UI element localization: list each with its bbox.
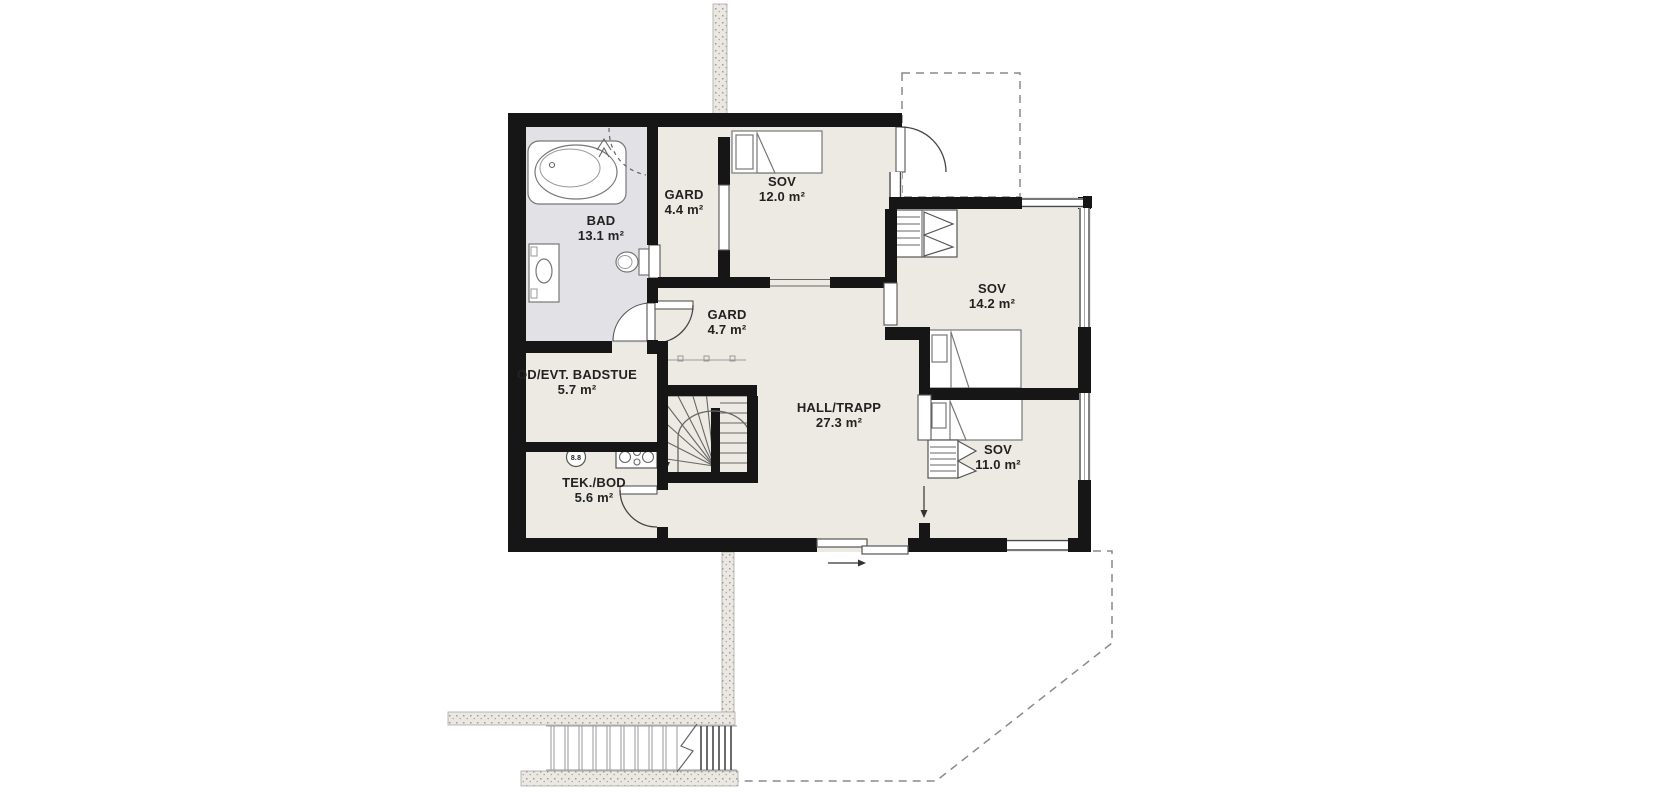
window-porch xyxy=(889,172,902,197)
door-gard-44 xyxy=(719,185,729,250)
bathtub xyxy=(528,141,626,204)
vent-shaft xyxy=(713,4,727,114)
bed-sov-110 xyxy=(928,399,1022,440)
room-area-sov-120: 12.0 m² xyxy=(759,189,806,204)
room-area-gard-44: 4.4 m² xyxy=(665,202,704,217)
room-area-bod-badstue: 5.7 m² xyxy=(558,382,597,397)
room-area-hall-trapp: 27.3 m² xyxy=(816,415,863,430)
open-door-sov-110 xyxy=(918,395,931,440)
terrace-outline xyxy=(738,551,1112,781)
outdoor-stairs xyxy=(546,724,737,772)
stair-break-line xyxy=(677,724,697,772)
floor-plan-page: 8.8 xyxy=(0,0,1670,800)
room-label-sov-110: SOV xyxy=(984,442,1012,457)
room-area-gard-47: 4.7 m² xyxy=(708,322,747,337)
floor-plan-drawing: 8.8 xyxy=(0,0,1670,800)
room-label-sov-120: SOV xyxy=(768,174,796,189)
room-area-sov-142: 14.2 m² xyxy=(969,296,1016,311)
window-right-lower xyxy=(1079,393,1090,480)
room-label-bod-badstue: OD/EVT. BADSTUE xyxy=(517,367,637,382)
porch-outline xyxy=(902,73,1020,197)
sink-vanity xyxy=(529,244,559,302)
wall-niche xyxy=(649,245,660,278)
room-area-bad: 13.1 m² xyxy=(578,228,625,243)
room-label-bad: BAD xyxy=(587,213,616,228)
window-bottom xyxy=(1007,539,1068,551)
entry-door xyxy=(896,127,946,172)
bed-sov-120 xyxy=(732,131,822,173)
room-area-sov-110: 11.0 m² xyxy=(975,457,1021,472)
room-label-hall-trapp: HALL/TRAPP xyxy=(797,400,881,415)
room-label-tek-bod: TEK./BOD xyxy=(562,475,626,490)
open-door-sov-142 xyxy=(884,283,897,325)
room-label-sov-142: SOV xyxy=(978,281,1006,296)
wardrobe-sov-142 xyxy=(893,210,957,257)
room-label-gard-44: GARD xyxy=(664,187,703,202)
bed-sov-142 xyxy=(928,330,1021,388)
room-area-tek-bod: 5.6 m² xyxy=(575,490,614,505)
water-heater-label: 8.8 xyxy=(571,455,581,462)
room-label-gard-47: GARD xyxy=(707,307,746,322)
window-right-upper xyxy=(1079,208,1090,327)
